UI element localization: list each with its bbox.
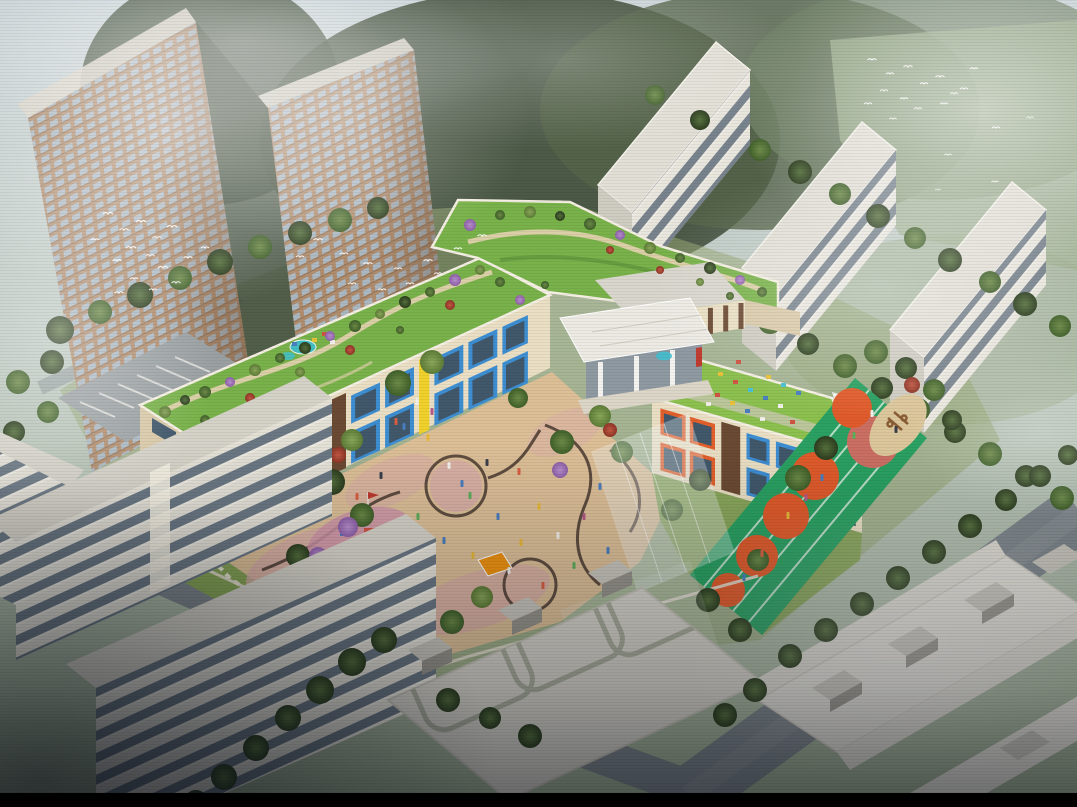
rendering-canvas <box>0 0 1077 807</box>
rendering-viewport <box>0 0 1077 807</box>
bottom-letterbox-bar <box>0 793 1077 807</box>
